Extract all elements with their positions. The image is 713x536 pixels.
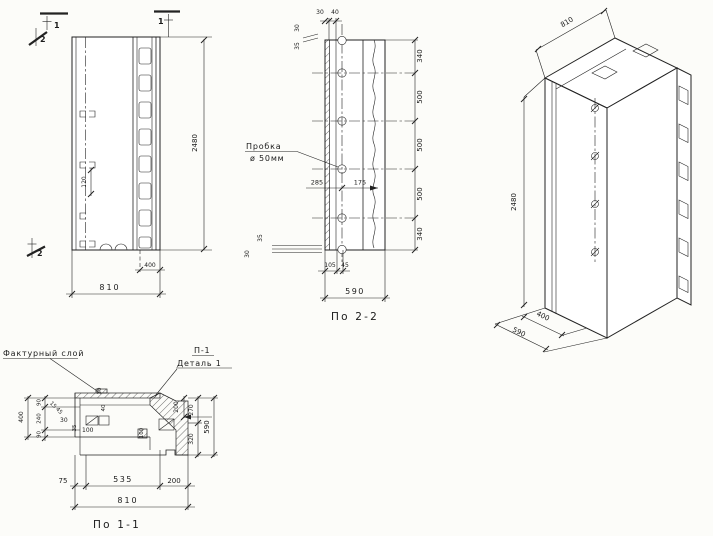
section1-right-dims: 270 320 590 — [188, 395, 218, 458]
right-wall-hatched — [150, 393, 188, 455]
dim-285: 285 — [311, 179, 323, 187]
inner-bottom-edge — [80, 450, 188, 455]
dim-channel-label: 400 — [144, 262, 156, 269]
detail-callout: П-1 Деталь 1 — [155, 346, 232, 396]
plug-callout-line2: ø 50мм — [250, 154, 285, 163]
dim-top-30: 30 — [316, 9, 324, 16]
elevation-view: 2480 120 400 810 1 1 2 — [27, 12, 212, 299]
iso-linework — [545, 38, 691, 338]
dim-left-240: 240 — [37, 413, 43, 424]
marker-1-mid-label: 1 — [158, 17, 164, 26]
section-2-2-view: 340 500 500 500 340 30 40 30 35 285 175 … — [244, 9, 424, 323]
dim-height-label: 2480 — [191, 134, 199, 152]
plug-callout-line1: Пробка — [246, 142, 281, 151]
section-marker-1-left: 1 — [40, 14, 68, 31]
section2-title: По 2-2 — [331, 311, 379, 323]
facture-layer-hatch — [325, 40, 330, 250]
dim-width-label: 810 — [99, 283, 120, 292]
iso-dim-810: 810 — [559, 15, 575, 29]
dim-45: 45 — [54, 407, 64, 417]
iso-dim-2480: 2480 — [510, 193, 518, 211]
section1-title: По 1-1 — [93, 519, 141, 531]
section1-left-dims: 400 90 240 90 15 45 30 35 100 — [18, 395, 94, 441]
detail-label: Деталь 1 — [177, 359, 222, 368]
dim-105: 105 — [324, 262, 336, 269]
section1-linework — [75, 389, 188, 455]
dim-500-b: 500 — [416, 138, 424, 151]
dim-left-90-bot: 90 — [37, 431, 43, 438]
marker-1-left-label: 1 — [54, 21, 60, 30]
dim-v40: 40 — [101, 404, 107, 411]
dim-45: 45 — [341, 262, 349, 269]
dim-500-a: 500 — [416, 90, 424, 103]
facture-layer-strip — [75, 393, 160, 398]
dim-botleft-30: 30 — [244, 250, 251, 258]
drawing-sheet: 2480 120 400 810 1 1 2 — [0, 0, 713, 536]
section2-topleft-dims: 30 35 — [294, 24, 318, 50]
section2-botleft-dims: 35 30 — [244, 234, 322, 258]
section-marker-1-mid: 1 — [154, 12, 180, 38]
dim-bot-810: 810 — [117, 496, 138, 505]
section2-bottom-dims: 105 45 590 — [318, 250, 390, 302]
iso-dim-height: 2480 — [510, 78, 545, 308]
elevation-dim-channel: 400 — [135, 250, 165, 273]
dim-bot-535: 535 — [113, 475, 133, 484]
dim-right-320: 320 — [188, 433, 195, 445]
drawing-canvas: 2480 120 400 810 1 1 2 — [0, 0, 713, 536]
dim-175: 175 — [354, 179, 366, 187]
embedded-part-left — [86, 416, 109, 425]
detail-p1-label: П-1 — [194, 346, 210, 355]
dim-topleft-30: 30 — [294, 24, 301, 32]
marker-2-top-label: 2 — [40, 35, 46, 44]
dim-topleft-35: 35 — [294, 42, 301, 50]
facture-label: Фактурный слой — [3, 349, 84, 358]
section2-top-dims: 30 40 — [316, 9, 342, 40]
plug-callout: Пробка ø 50мм — [245, 142, 338, 167]
dim-botleft-35: 35 — [257, 234, 264, 242]
dim-left-400: 400 — [18, 411, 25, 423]
section1-bottom-dims: 75 535 200 810 — [59, 450, 195, 510]
section-marker-2-top: 2 — [29, 28, 47, 46]
iso-channel-strip — [677, 68, 691, 305]
dim-inner-label: 120 — [81, 176, 88, 188]
section-1-1-view: Фактурный слой П-1 Деталь 1 400 90 240 9… — [3, 346, 232, 531]
marker-2-bottom-label: 2 — [37, 249, 43, 258]
dim-left-90-top: 90 — [37, 399, 43, 406]
dim-v100: 100 — [139, 427, 145, 438]
dim-bot-75: 75 — [59, 477, 68, 485]
dim-right-270: 270 — [188, 404, 195, 416]
dim-v30: 30 — [97, 387, 103, 394]
dim-590: 590 — [345, 287, 365, 296]
dim-340-top: 340 — [416, 49, 424, 62]
dim-bot-200: 200 — [167, 477, 180, 485]
dim-v200: 200 — [173, 401, 180, 413]
elevation-dim-height: 2480 — [191, 37, 207, 252]
dim-100: 100 — [82, 427, 94, 434]
dim-35: 35 — [72, 424, 78, 431]
section2-linework — [312, 24, 418, 262]
facture-callout: Фактурный слой — [3, 349, 100, 393]
dim-top-40: 40 — [331, 9, 339, 16]
dim-right-590: 590 — [203, 420, 211, 433]
iso-dim-400: 400 — [535, 310, 551, 323]
isometric-view: 810 2480 400 590 — [494, 8, 691, 352]
elevation-dim-width: 810 — [66, 250, 166, 298]
dim-500-c: 500 — [416, 187, 424, 200]
iso-front-face — [607, 68, 677, 338]
dim-340-bot: 340 — [416, 227, 424, 240]
section2-right-dims: 340 500 500 500 340 — [412, 37, 424, 253]
dim-30: 30 — [60, 417, 68, 424]
iso-left-face — [545, 78, 607, 338]
iso-dim-590: 590 — [511, 326, 527, 339]
section-marker-2-bottom: 2 — [27, 238, 45, 258]
